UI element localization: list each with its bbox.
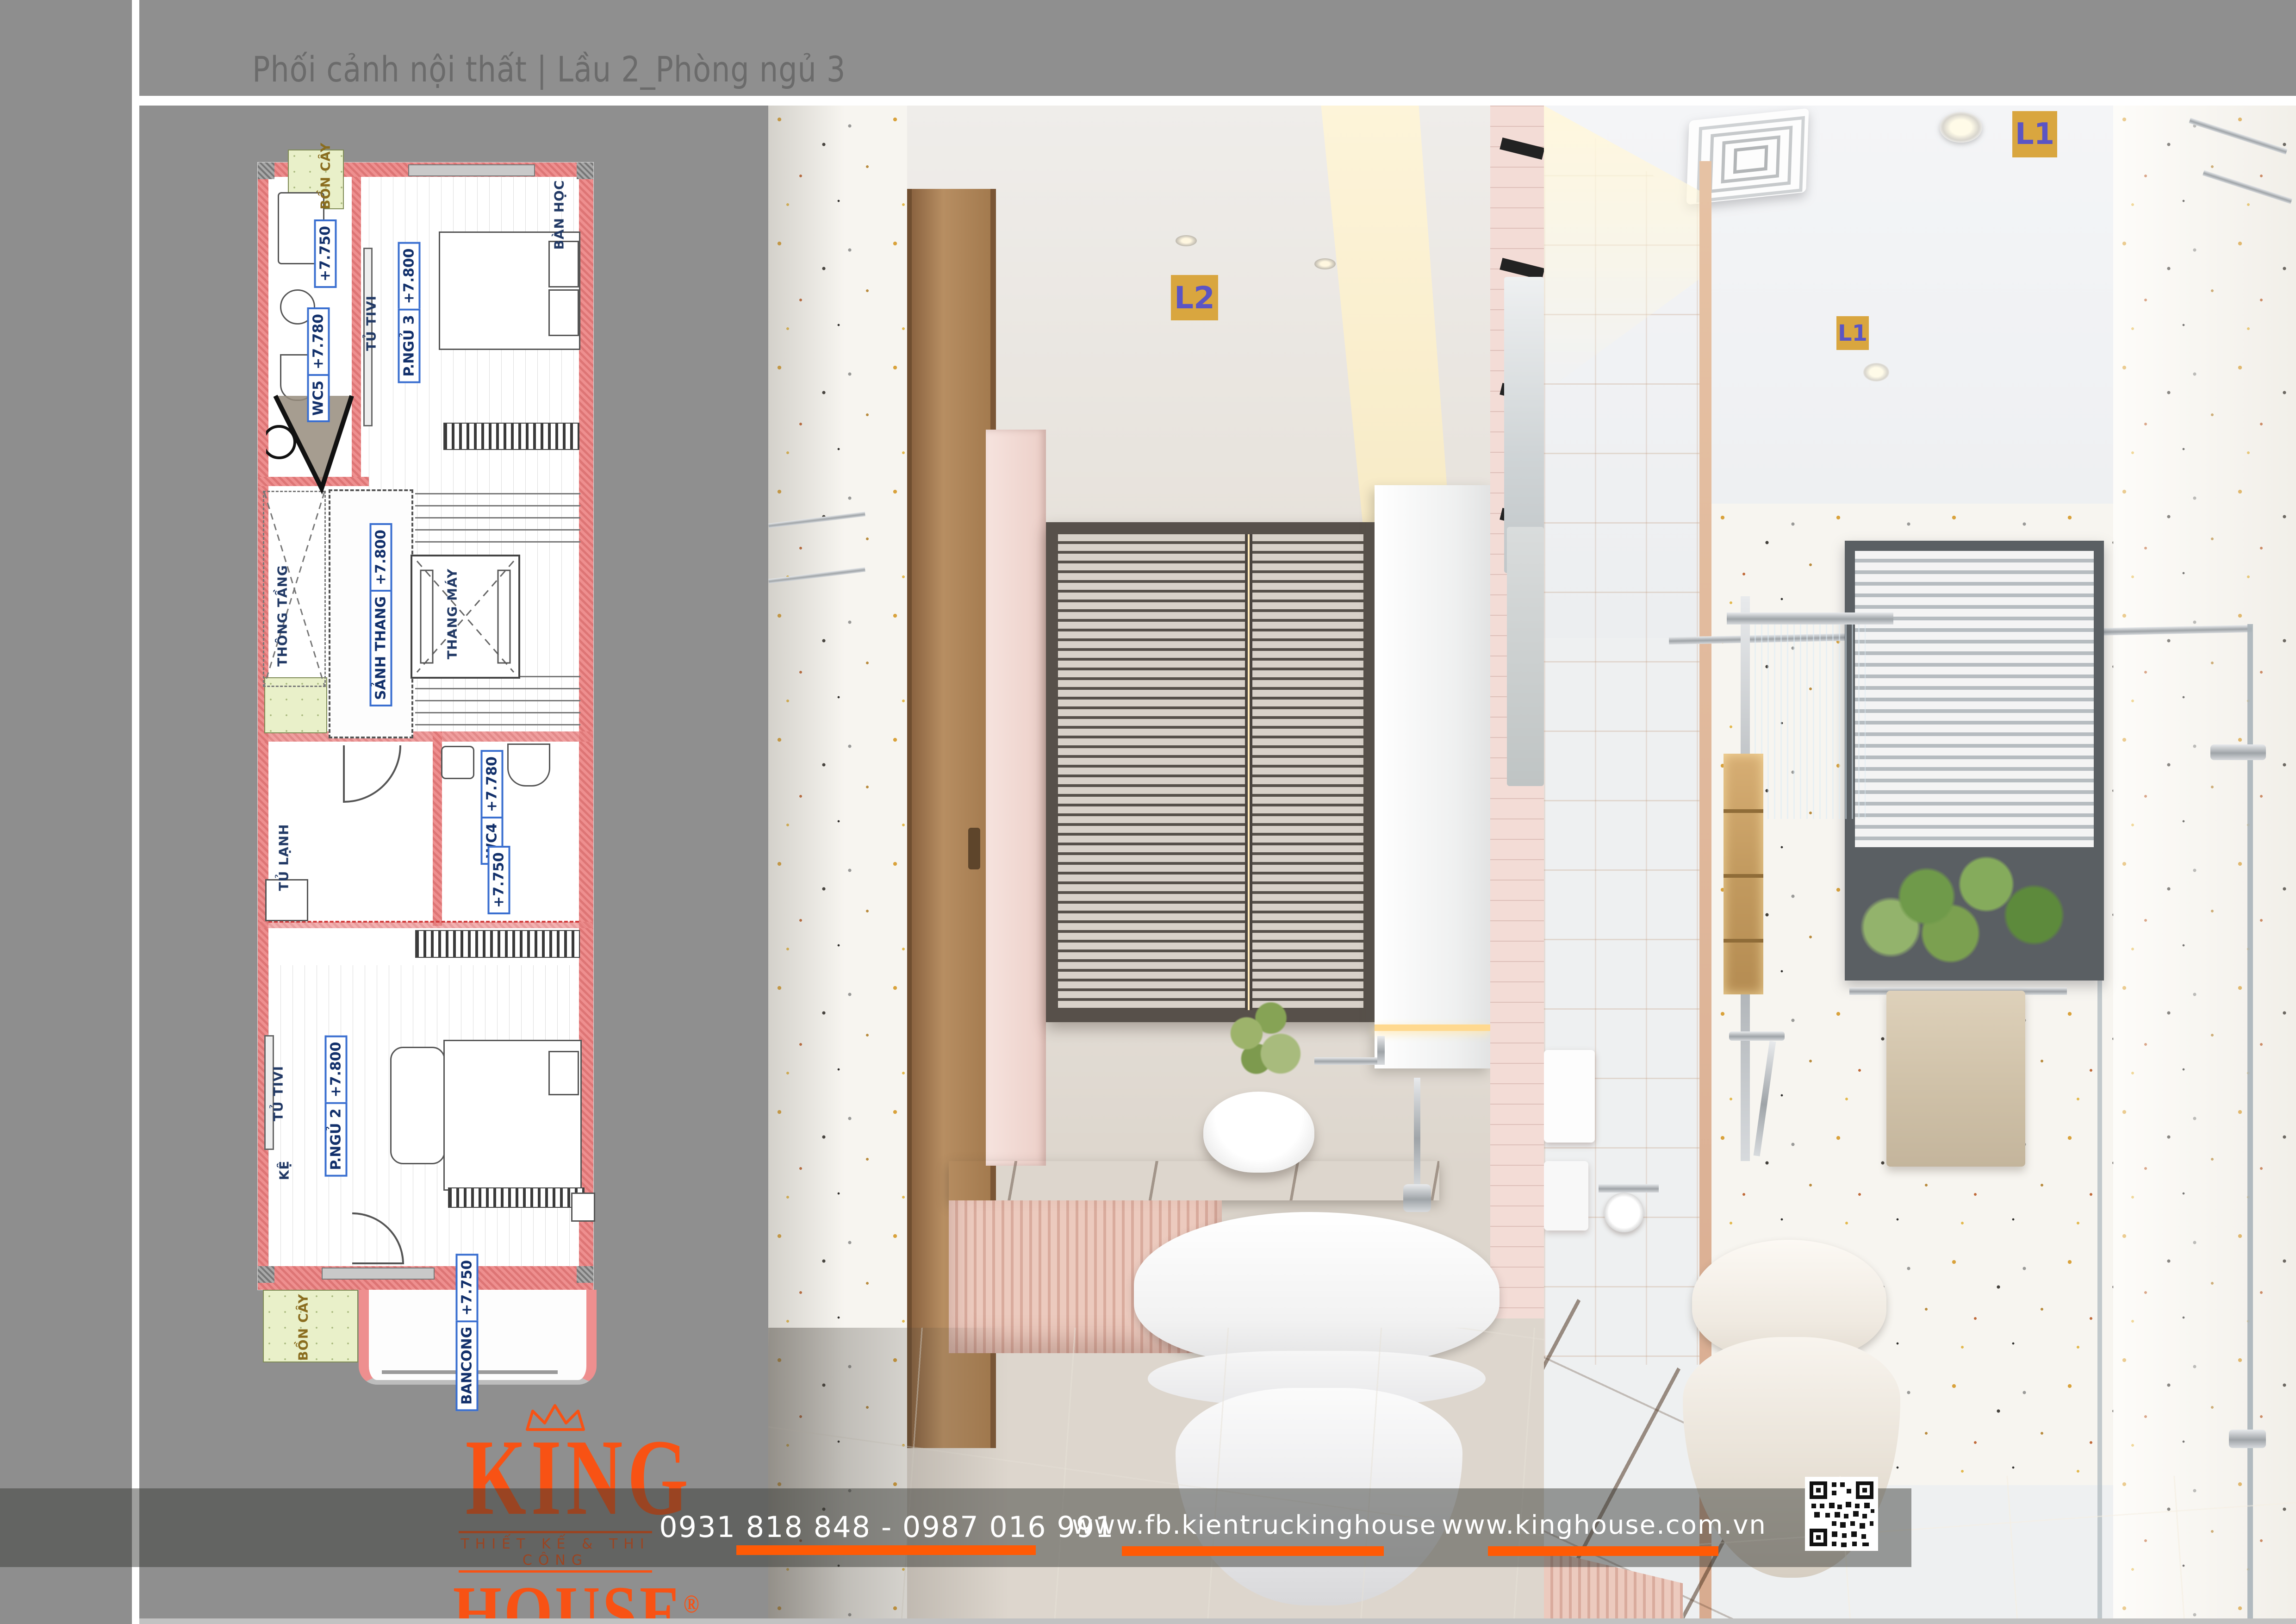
l1-window-frame [1845,541,2104,981]
downlight-icon [1176,235,1197,246]
faucet-icon [1314,1057,1384,1065]
plan-label-b-n-h-c: BÀN HỌC [552,180,567,250]
page-title: Phối cảnh nội thất | Lầu 2_Phòng ngủ 3 [252,49,846,90]
glass-edge [2247,624,2253,1624]
plan-label-t-tivi: TỦ TIVI [271,1066,286,1121]
l2-led-strip [1248,534,1250,1010]
footer-phone: 0931 818 848 - 0987 016 991 [659,1510,1114,1544]
rain-shower-arm-icon [1727,612,1893,625]
plan-label-thang-m-y: THANG MÁY [445,568,460,660]
downlight-icon [1314,258,1336,269]
l2-cabinet-underlight [1375,1024,1490,1031]
left-gray-column [0,0,132,1624]
plan-label-b-n-c-y: BỒN CÂY [296,1293,311,1361]
niche-shelf [1724,809,1763,813]
plan-label-k-: KỆ [277,1161,292,1181]
plan-label-b-n-c-y: BỒN CÂY [318,142,333,209]
towel-gray [1507,527,1544,786]
bidet-sprayer-icon [1414,1078,1420,1189]
door-hinge-icon [2229,1430,2266,1448]
view-tag-l1-mid: L1 [1836,316,1869,350]
plan-labels-layer: BỒN CÂY+7.750WC5+7.780P.NGỦ 3+7.800TỦ TI… [252,137,599,1407]
plant-icon [1213,987,1310,1089]
view-tag-label: L2 [1174,280,1215,316]
niche-shelf [1724,939,1763,943]
glass-clamp-icon [2210,744,2266,760]
towel-beige [1886,991,2025,1167]
door-handle-icon [968,828,980,869]
bidet-sprayer-icon [1403,1184,1431,1212]
presentation-sheet: Phối cảnh nội thất | Lầu 2_Phòng ngủ 3 [0,0,2296,1624]
tp-holder-icon [1599,1184,1659,1193]
footer-facebook: www.fb.kientruckinghouse [1072,1510,1437,1540]
l1-glass-sheen [2113,106,2296,1624]
logo-house-text: HOUSE [453,1570,684,1624]
shower-water [1755,625,1866,819]
footer-underline [1488,1546,1718,1556]
footer-website: www.kinghouse.com.vn [1442,1510,1767,1540]
niche-shelf [1724,874,1763,878]
plan-label-s-nh-thang: SẢNH THANG+7.800 [370,523,392,706]
plan-label--7-750: +7.750 [488,846,510,914]
l1-window-greenery [1855,847,2094,970]
l2-window-frame [1046,522,1375,1022]
vent-ring [1733,145,1768,174]
toilet-paper-roll [1604,1193,1644,1232]
plan-label-p-ng-3: P.NGỦ 3+7.800 [398,242,421,383]
faucet-icon [1377,1036,1385,1065]
footer-underline [1122,1546,1384,1556]
l2-vessel-sink [1203,1092,1314,1173]
render-bathroom-l1: L1 L1 [1544,106,2296,1624]
registered-mark: ® [684,1590,702,1618]
view-tag-l2: L2 [1171,275,1218,320]
l2-white-cabinet [1375,485,1490,1068]
plan-label-wc5: WC5+7.780 [307,307,330,422]
downlight-icon [1863,363,1889,381]
l2-floor-shadow [768,1328,1009,1624]
view-tag-l1-top: L1 [2012,111,2057,157]
qr-code [1805,1477,1878,1551]
l2-window-blinds [1058,534,1245,1010]
plan-label-th-ng-t-ng: THÔNG TẦNG [275,565,290,667]
footer-underline [736,1545,1036,1555]
shower-niche [1724,754,1763,994]
view-tag-label: L1 [1838,320,1867,346]
downlight-icon [1940,112,1982,143]
shower-mixer-icon [1729,1031,1785,1041]
render-bathroom-l2: L2 [768,106,1544,1624]
floor-plan: BỒN CÂY+7.750WC5+7.780P.NGỦ 3+7.800TỦ TI… [252,137,599,1407]
wall-control-panel [1544,1050,1595,1143]
header-divider [139,96,2296,106]
plan-label-t-l-nh: TỦ LẠNH [276,824,292,891]
plan-label-t-tivi: TỦ TIVI [364,295,379,351]
plan-label-p-ng-2: P.NGỦ 2+7.800 [325,1035,348,1176]
plan-label-bancong: BANCONG+7.750 [456,1254,479,1411]
view-tag-label: L1 [2015,117,2054,151]
vertical-divider [132,0,139,1624]
l2-marble-counter [949,1161,1439,1200]
l2-pink-panel [986,430,1046,1166]
l2-window-blinds [1252,534,1363,1010]
l1-window-blinds [1855,551,2094,847]
bottom-strip [139,1618,2296,1624]
l2-towel-ladder [1500,143,1544,837]
plan-label--7-750: +7.750 [314,219,337,288]
wall-control-panel [1544,1161,1588,1230]
logo-name-bottom: HOUSE® [453,1574,658,1624]
